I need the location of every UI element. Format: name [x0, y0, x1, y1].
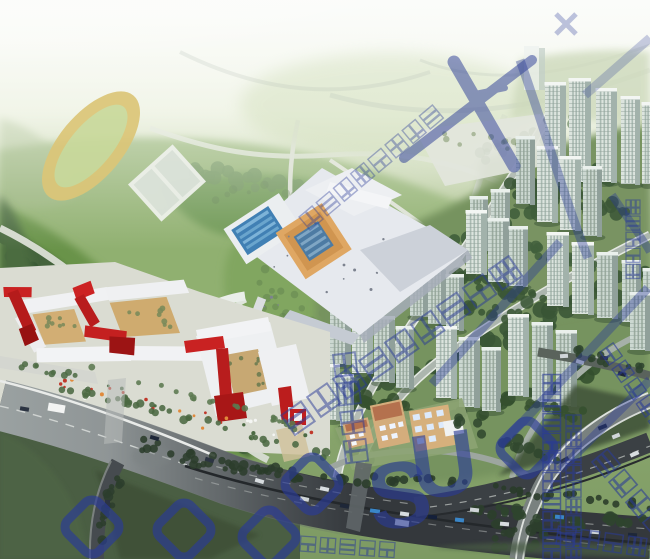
- svg-text:U: U: [404, 410, 484, 520]
